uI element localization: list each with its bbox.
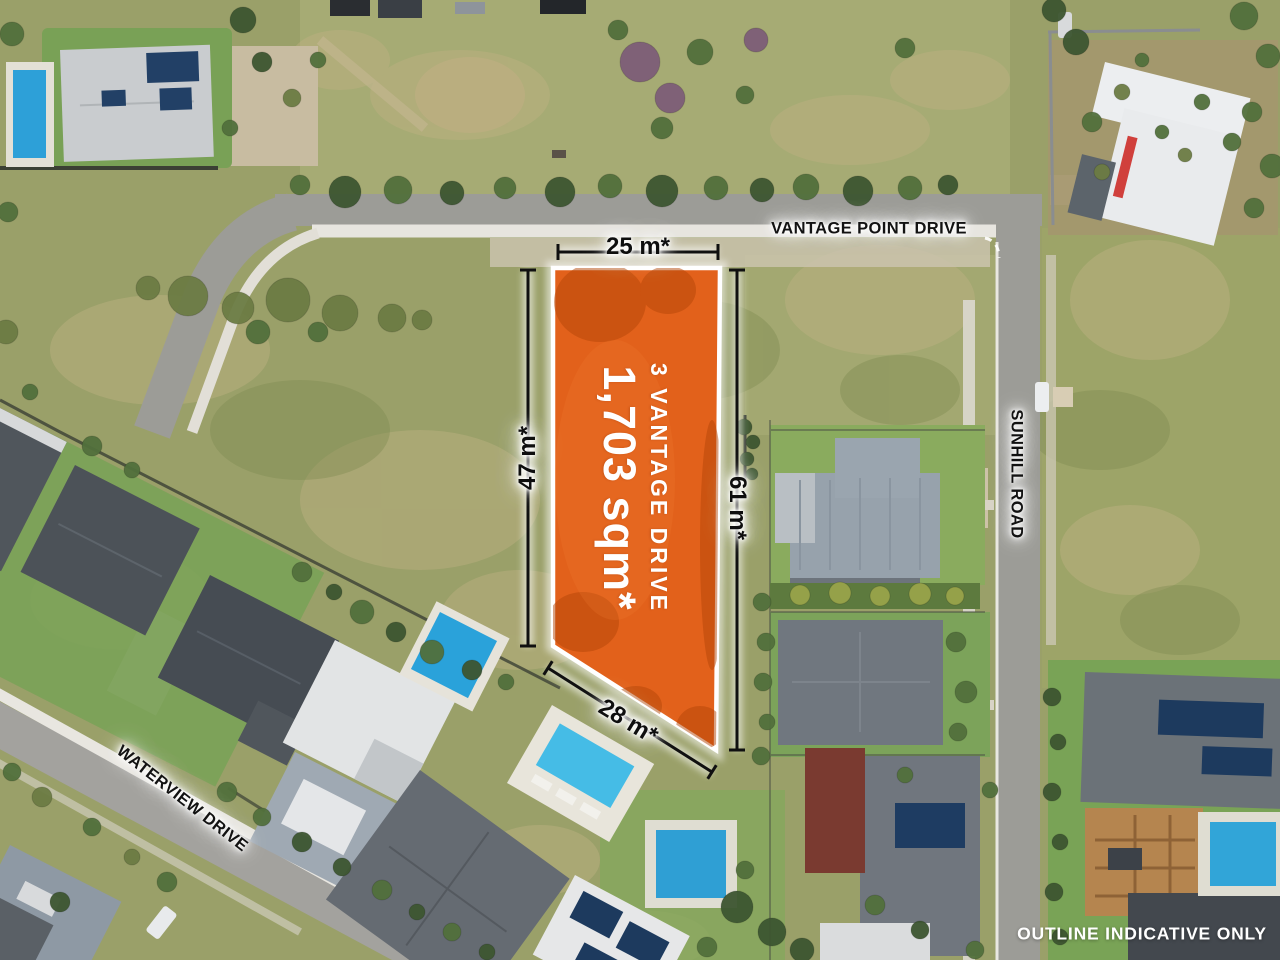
swimming-pool (6, 62, 54, 167)
street-label-vantage-point-drive: VANTAGE POINT DRIVE (771, 220, 967, 239)
house-roof (805, 748, 980, 960)
measurement-top-label: 25 m* (606, 233, 670, 261)
swimming-pool (645, 820, 737, 908)
disclaimer-text: OUTLINE INDICATIVE ONLY (1017, 924, 1267, 945)
house-roof (60, 45, 214, 162)
measurement-left-label: 47 m* (514, 426, 542, 490)
house-roof (778, 620, 943, 745)
aerial-site-photo: 25 m* 47 m* 61 m* 28 m* VANTAGE POINT DR… (0, 0, 1280, 960)
swimming-pool (1198, 812, 1280, 896)
excavator (1108, 848, 1142, 870)
lot-label: 3 VANTAGE DRIVE 1,703 sqm* (595, 363, 673, 613)
measurement-right-label: 61 m* (723, 476, 751, 540)
lot-address: 3 VANTAGE DRIVE (644, 363, 673, 613)
street-label-sunhill-road: SUNHILL ROAD (1007, 409, 1026, 538)
lot-area: 1,703 sqm* (595, 363, 645, 613)
